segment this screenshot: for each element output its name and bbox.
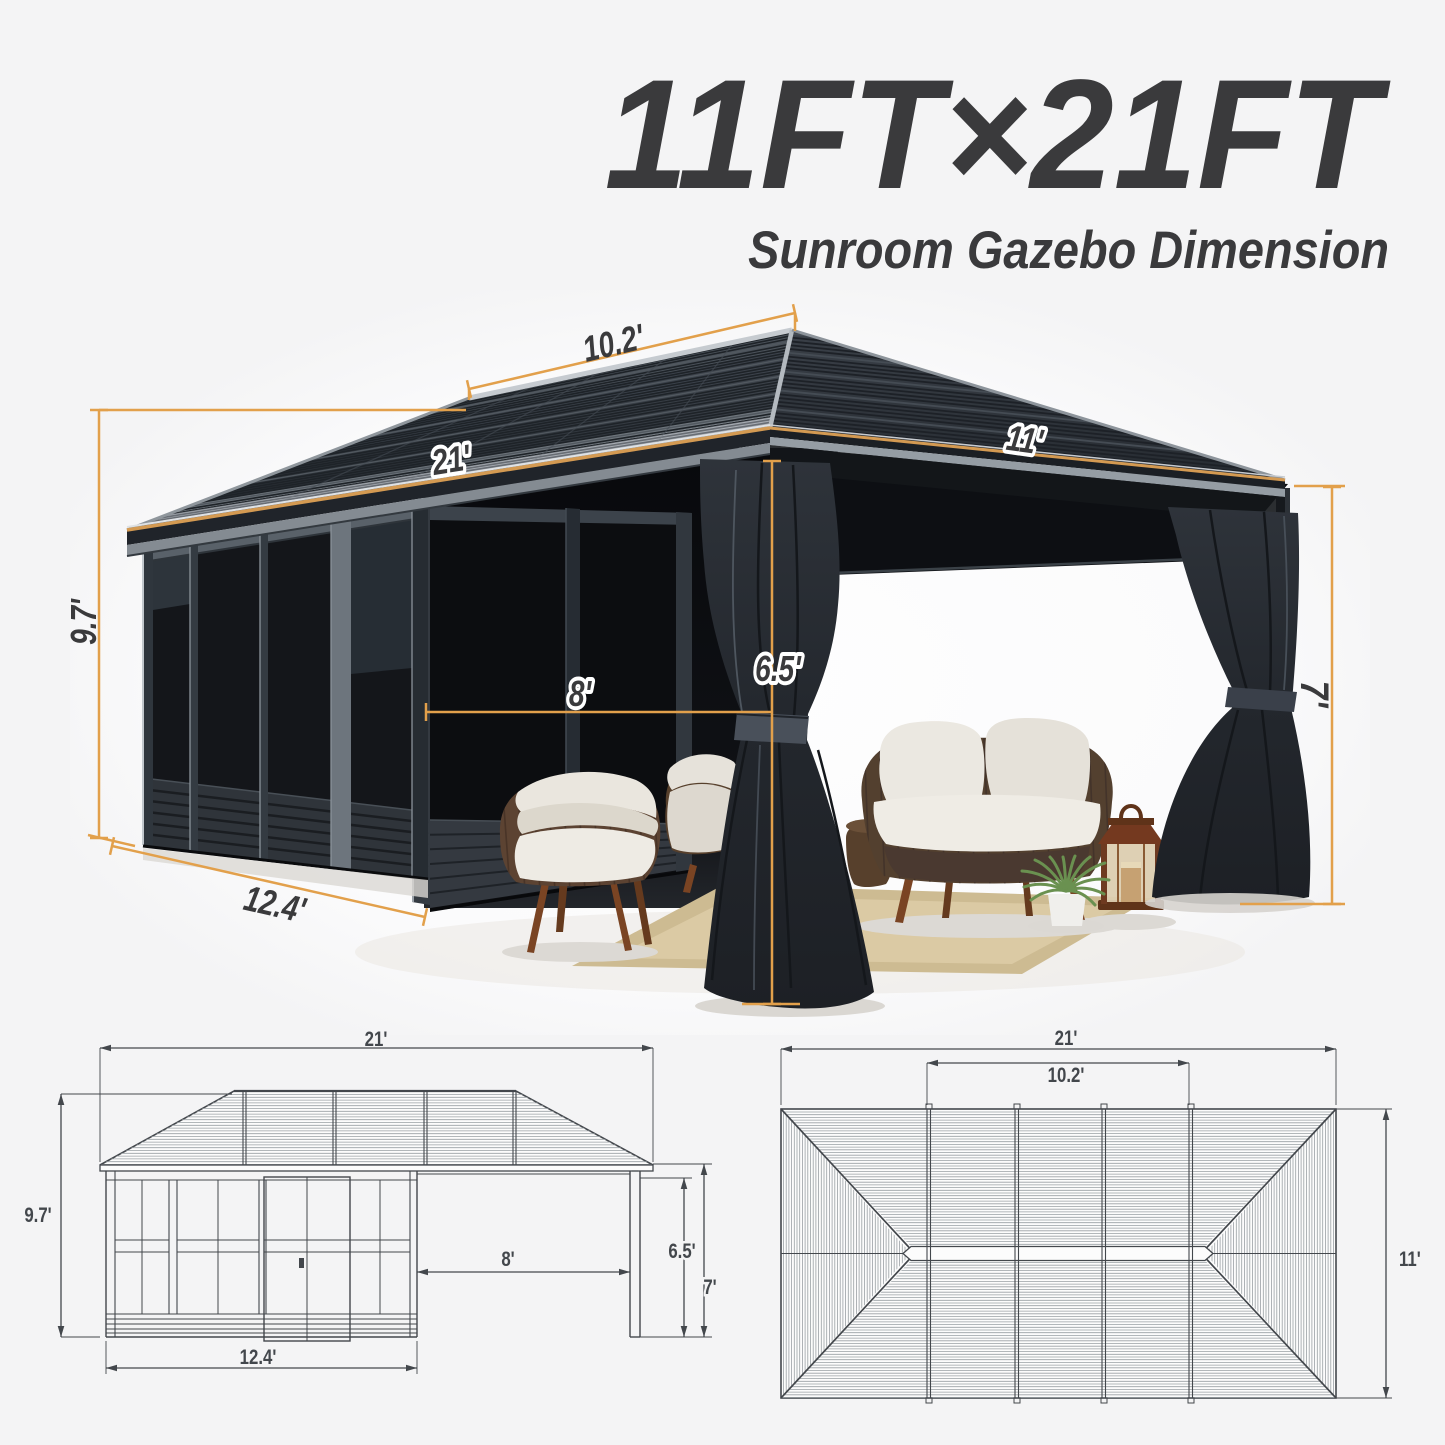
svg-text:12.4': 12.4' bbox=[240, 1346, 277, 1369]
svg-text:11FT×21FT: 11FT×21FT bbox=[605, 48, 1392, 221]
svg-text:Sunroom Gazebo Dimension: Sunroom Gazebo Dimension bbox=[748, 220, 1389, 279]
svg-text:6.5': 6.5' bbox=[668, 1240, 695, 1263]
svg-text:11': 11' bbox=[1399, 1248, 1421, 1271]
svg-text:7': 7' bbox=[1292, 681, 1337, 709]
svg-text:8': 8' bbox=[569, 674, 592, 714]
svg-text:11': 11' bbox=[1004, 417, 1046, 462]
svg-text:9.7': 9.7' bbox=[24, 1204, 51, 1227]
svg-text:9.7': 9.7' bbox=[64, 598, 104, 645]
svg-text:21': 21' bbox=[365, 1028, 388, 1051]
svg-text:6.5': 6.5' bbox=[755, 649, 802, 689]
svg-text:10.2': 10.2' bbox=[1048, 1064, 1085, 1087]
svg-text:21': 21' bbox=[428, 437, 474, 483]
svg-text:7': 7' bbox=[703, 1276, 716, 1299]
svg-text:8': 8' bbox=[501, 1248, 514, 1271]
svg-text:21': 21' bbox=[1055, 1027, 1078, 1050]
